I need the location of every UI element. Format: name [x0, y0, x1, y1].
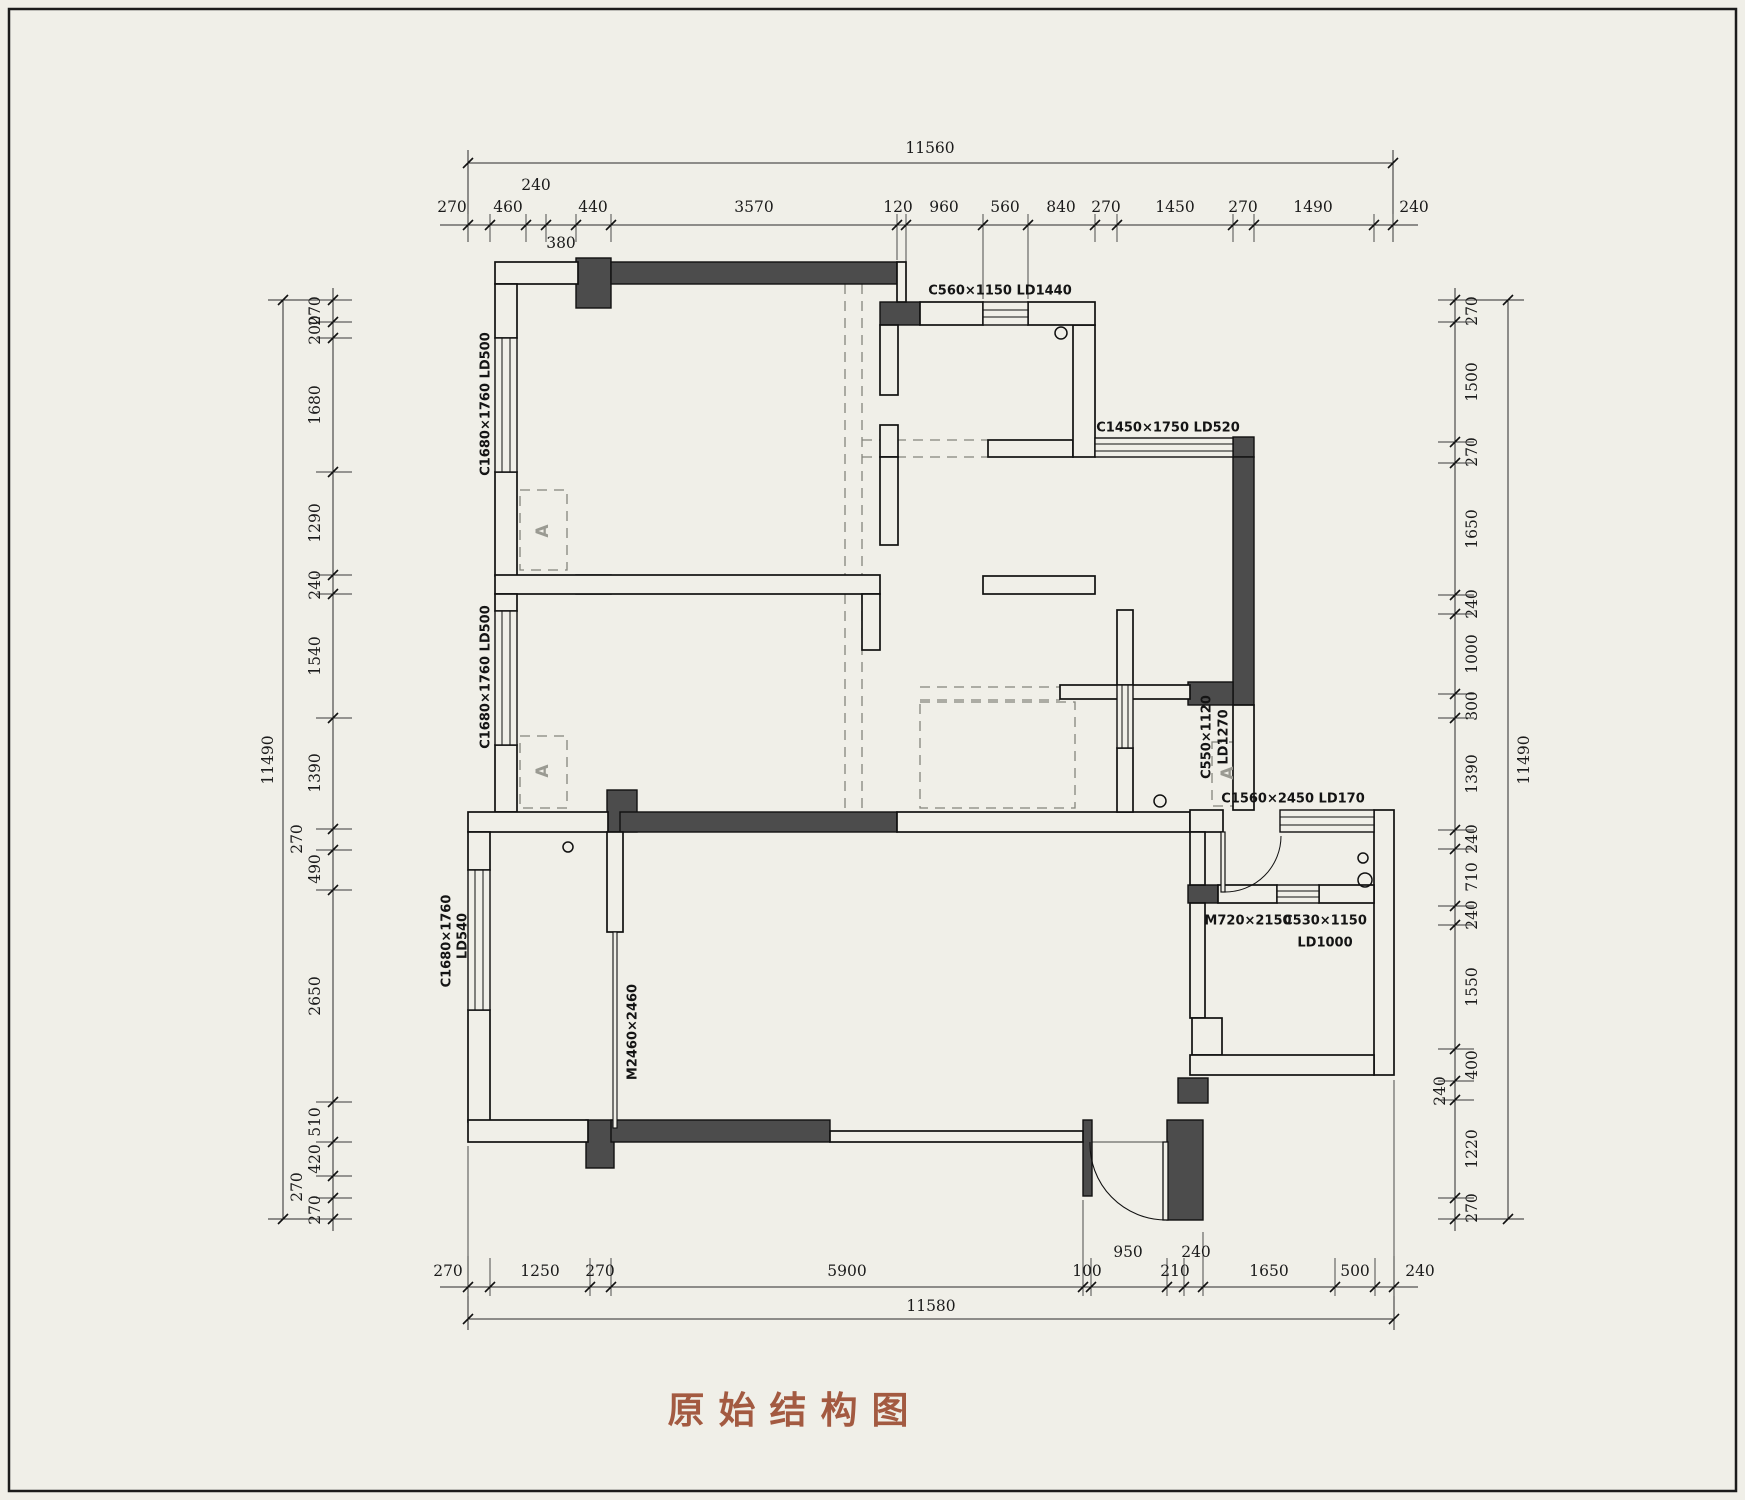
- wall-corner-block: [1178, 1078, 1208, 1103]
- dim-top-seg: 960: [929, 198, 959, 216]
- dim-top-overall: 11560: [905, 139, 954, 157]
- wall-bottom-dark: [611, 1120, 830, 1142]
- dim-top-seg: 840: [1046, 198, 1076, 216]
- wall-bath-dark: [1188, 885, 1218, 903]
- pipe-icon: [1358, 853, 1368, 863]
- window-kitchen-right: [1095, 438, 1233, 457]
- window-living: [468, 870, 490, 1010]
- window-label-bath-top: C1560×2450 LD170: [1221, 792, 1365, 807]
- wall-entry-right: [1167, 1120, 1203, 1220]
- dim-left-seg: 270: [288, 824, 306, 854]
- dim-bottom-seg: 100: [1072, 1262, 1102, 1280]
- dim-bottom-seg: 950: [1113, 1243, 1143, 1261]
- window-bed2: [495, 611, 517, 745]
- wall-column-topleft: [576, 258, 611, 308]
- dim-right-seg: 270: [1463, 437, 1481, 467]
- dim-right-seg: 1650: [1463, 509, 1481, 548]
- dim-right-seg: 1000: [1463, 634, 1481, 673]
- dim-bottom-seg: 1250: [520, 1262, 559, 1280]
- dim-bottom-seg: 270: [585, 1262, 615, 1280]
- dim-right-seg: 300: [1463, 691, 1481, 721]
- dim-left-seg: 510: [306, 1107, 324, 1137]
- wall-step-dark: [880, 302, 920, 325]
- dim-bottom-seg: 1650: [1249, 1262, 1288, 1280]
- dashed-appliance-box: [920, 702, 1075, 808]
- drawing-title: 原始结构图: [668, 1380, 923, 1434]
- wall-bottom-block: [586, 1120, 614, 1168]
- dim-top-seg: 240: [521, 176, 551, 194]
- dim-bottom-seg: 240: [1181, 1243, 1211, 1261]
- floorplan-page: 11560 270 460 240 380 440 3570 120 960 5…: [0, 0, 1745, 1500]
- door-label-balcony: M2460×2460: [626, 984, 641, 1080]
- window-bath-top: [1280, 810, 1374, 832]
- dim-top-seg: 3570: [734, 198, 773, 216]
- dim-left-seg: 240: [306, 570, 324, 600]
- window-label-bath-bottom-ld: LD1000: [1297, 936, 1352, 951]
- dim-top-seg: 1490: [1293, 198, 1332, 216]
- dim-right-seg: 270: [1463, 1193, 1481, 1223]
- wall-window-end-block: [1233, 437, 1254, 457]
- dim-right-seg: 710: [1463, 862, 1481, 892]
- window-label-living-1: C1680×1760: [440, 895, 455, 988]
- dim-right-seg: 240: [1463, 900, 1481, 930]
- window-label-bed2: C1680×1760 LD500: [479, 605, 494, 749]
- dim-top-seg: 1450: [1155, 198, 1194, 216]
- wall-top-dark: [611, 262, 897, 284]
- window-label-niche-2: LD1270: [1217, 709, 1232, 764]
- dark-walls: [576, 258, 1254, 1220]
- dim-bottom-seg: 210: [1160, 1262, 1190, 1280]
- dim-right-seg: 240: [1431, 1076, 1449, 1106]
- ac-symbol-icon: A: [533, 764, 553, 777]
- dim-bottom-overall: 11580: [906, 1297, 955, 1315]
- dim-top-seg: 440: [578, 198, 608, 216]
- dim-left-seg: 200: [306, 315, 324, 345]
- dim-bottom-seg: 240: [1405, 1262, 1435, 1280]
- dim-left-seg: 420: [306, 1144, 324, 1174]
- door-entrance: [1090, 1142, 1168, 1220]
- dim-right-seg: 1500: [1463, 362, 1481, 401]
- door-label-bath: M720×2150: [1204, 914, 1291, 929]
- wall-bath-right: [1374, 810, 1394, 1075]
- wall-kitchen-right: [1073, 325, 1095, 457]
- dim-bottom-seg: 500: [1340, 1262, 1370, 1280]
- dim-left-seg: 1290: [306, 503, 324, 542]
- dim-left-seg: 270: [288, 1172, 306, 1202]
- wall-bed2-bottom-dark: [620, 812, 897, 832]
- dim-left-seg: 1390: [306, 753, 324, 792]
- window-label-living-2: LD540: [456, 913, 471, 959]
- ac-symbol-icon: A: [533, 524, 553, 537]
- window-label-niche-1: C550×1120: [1200, 695, 1215, 779]
- dim-right-seg: 400: [1463, 1050, 1481, 1080]
- pipe-icon: [563, 842, 573, 852]
- door-bathroom: [1221, 832, 1281, 892]
- window-label-kitchen-right: C1450×1750 LD520: [1096, 421, 1240, 436]
- ac-symbol-icon: A: [1218, 766, 1238, 779]
- dim-top-seg: 270: [1091, 198, 1121, 216]
- dim-top-seg: 270: [1228, 198, 1258, 216]
- window-label-bed1: C1680×1760 LD500: [479, 332, 494, 476]
- wall-bedroom-divider: [495, 575, 880, 594]
- dim-right-seg: 240: [1463, 824, 1481, 854]
- dim-right-overall: 11490: [1515, 735, 1533, 784]
- window-bed1: [495, 338, 517, 472]
- dim-left-seg: 270: [306, 1195, 324, 1225]
- dim-top-seg: 560: [990, 198, 1020, 216]
- dim-top-seg: 380: [546, 234, 576, 252]
- dim-left-seg: 490: [306, 854, 324, 884]
- wall-right-dark: [1233, 457, 1254, 705]
- walls: [468, 262, 1394, 1142]
- dim-right-seg: 1390: [1463, 754, 1481, 793]
- dim-left-seg: 1680: [306, 385, 324, 424]
- dim-right-seg: 270: [1463, 296, 1481, 326]
- dim-top-seg: 120: [883, 198, 913, 216]
- window-niche: [1117, 685, 1133, 748]
- pipe-icon: [1154, 795, 1166, 807]
- dim-left-seg: 2650: [306, 976, 324, 1015]
- dim-left-overall: 11490: [259, 735, 277, 784]
- dim-top-seg: 270: [437, 198, 467, 216]
- dim-right-seg: 1550: [1463, 967, 1481, 1006]
- dim-right-seg: 1220: [1463, 1129, 1481, 1168]
- pipe-icon: [1055, 327, 1067, 339]
- door-balcony: [613, 932, 617, 1128]
- window-label-bath-bottom: C530×1150: [1283, 914, 1367, 929]
- dim-top-seg: 240: [1399, 198, 1429, 216]
- window-kitchen-top: [983, 302, 1028, 325]
- dim-top-seg: 460: [493, 198, 523, 216]
- dim-bottom-seg: 270: [433, 1262, 463, 1280]
- dim-right-seg: 240: [1463, 589, 1481, 619]
- window-bath-bottom: [1277, 885, 1319, 903]
- dim-left-seg: 1540: [306, 636, 324, 675]
- dim-bottom-seg: 5900: [827, 1262, 866, 1280]
- window-label-kitchen-top: C560×1150 LD1440: [928, 284, 1072, 299]
- wall-entry-left: [1083, 1120, 1092, 1196]
